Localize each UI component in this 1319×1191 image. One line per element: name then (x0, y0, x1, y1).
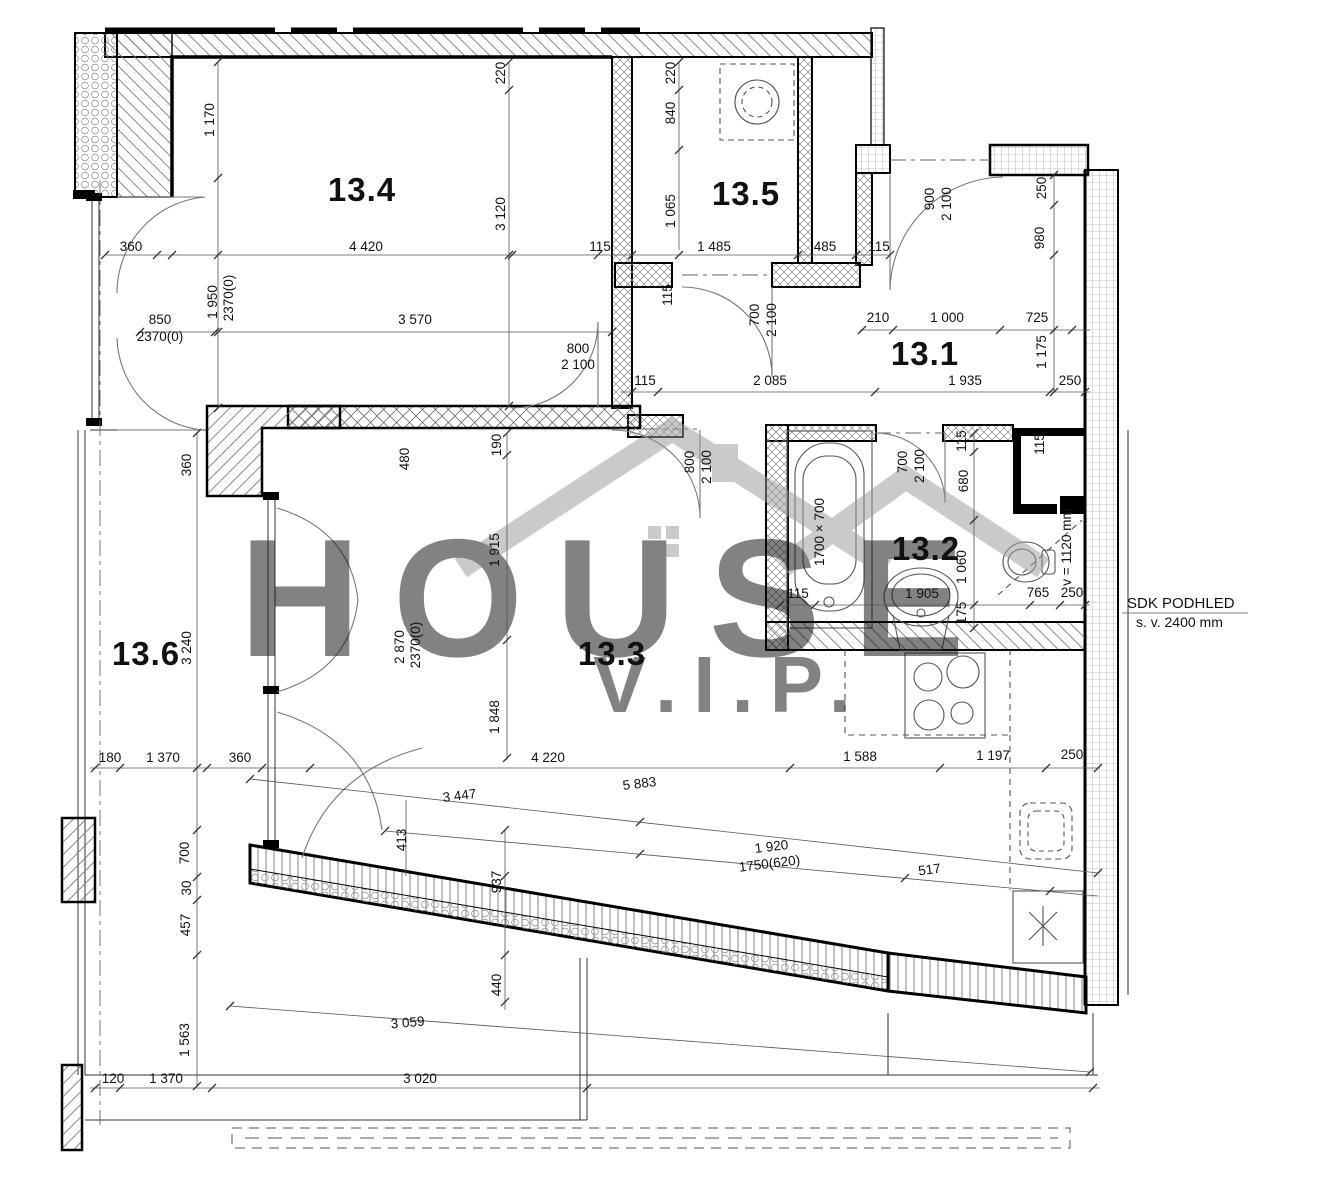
dim-label: 2 100 (912, 449, 927, 483)
dim-label: 5 883 (622, 774, 657, 793)
dim-label: 360 (179, 454, 194, 477)
room-label-13-4: 13.4 (328, 171, 396, 208)
dim-label: 250 (1061, 585, 1084, 600)
dim-label: 2370(0) (137, 329, 184, 344)
dim-label: 1 060 (954, 550, 969, 584)
dim-label: 900 (922, 188, 937, 211)
dim-label: 2 085 (753, 373, 787, 388)
dim-label: 2 100 (939, 187, 954, 221)
dim-label: 4 220 (531, 750, 565, 765)
dim-label: 1 588 (843, 749, 877, 764)
dim-label: 2 100 (699, 450, 714, 484)
dim-label: 1 370 (149, 1071, 183, 1086)
dim-label: 1 920 (754, 837, 789, 856)
loggia-wall-insulation (250, 869, 888, 991)
dim-label: 115 (868, 239, 890, 254)
dim-label: 4 420 (349, 239, 383, 254)
shaft-wall (1013, 428, 1021, 512)
dim-label: 765 (1027, 585, 1050, 600)
dim-label: 937 (489, 871, 504, 894)
dim-label: 220 (663, 62, 678, 85)
wall-13-5-bottom-left (615, 263, 672, 287)
dim-label: 800 (567, 341, 590, 356)
window-left (92, 197, 99, 425)
wall-13-5-right (798, 57, 812, 263)
dim-label: 1750(620) (738, 852, 801, 874)
left-exterior-wall-insulation (75, 33, 117, 197)
dim-label: 840 (663, 102, 678, 125)
dim-label: 800 (682, 451, 697, 474)
balcony-pillar (62, 1065, 82, 1150)
dim-label: 3 059 (390, 1014, 425, 1032)
dim-label: 115 (954, 430, 969, 452)
window-jamb (263, 840, 279, 848)
dim-label: 180 (99, 750, 122, 765)
room-label-13-1: 13.1 (891, 335, 959, 372)
dim-label: 1 170 (202, 103, 217, 137)
floor-plan-page: HOUSE V.I.P. 13.4 13.5 13.1 13.2 13.3 13… (0, 0, 1319, 1191)
dim-label: 2 870 (392, 630, 407, 664)
dim-label: 1 935 (948, 373, 982, 388)
dishwasher-icon (1013, 891, 1083, 963)
dim-label: 3 240 (179, 631, 194, 665)
dim-label: 3 120 (493, 197, 508, 231)
dim-label: 250 (1034, 177, 1049, 200)
wall-13-4-13-5 (612, 57, 632, 408)
kitchen-sink-icon (1020, 803, 1072, 859)
dim-label: 457 (178, 914, 193, 937)
right-exterior-wall (1085, 170, 1118, 1005)
dim-label: 480 (397, 448, 412, 471)
shaft-wall (1013, 504, 1057, 514)
height-note-label: v = 1120 mm (1059, 508, 1074, 585)
dim-label: 725 (1026, 310, 1049, 325)
dim-label: 1 950 (205, 285, 220, 319)
window-jamb (263, 492, 279, 500)
dim-label: 1 915 (487, 533, 502, 567)
dim-label: 115 (1032, 433, 1047, 455)
dim-label: 980 (1032, 227, 1047, 250)
dim-label: 360 (120, 239, 143, 254)
dim-label: 2370(0) (221, 275, 236, 322)
dim-label: 250 (1059, 373, 1082, 388)
room-label-13-2: 13.2 (892, 530, 960, 567)
dim-label: 190 (489, 434, 504, 457)
room-label-13-3: 13.3 (578, 635, 646, 672)
dim-label: 3 570 (398, 312, 432, 327)
dim-label: 1 848 (487, 700, 502, 734)
room-label-13-6: 13.6 (112, 635, 180, 672)
dim-label: 120 (102, 1071, 125, 1086)
corner-wall-13-3 (207, 406, 340, 496)
washing-machine-icon (720, 64, 794, 140)
balcony-door-swing (277, 712, 382, 830)
dim-label: 220 (493, 62, 508, 85)
dim-label: 485 (814, 239, 837, 254)
dim-label: 115 (634, 373, 656, 388)
dim-label: 30 (179, 880, 194, 895)
floor-plan-drawing: HOUSE V.I.P. 13.4 13.5 13.1 13.2 13.3 13… (0, 0, 1319, 1191)
dim-label: 3 447 (442, 786, 477, 805)
bathtub-size-label: 1700 × 700 (812, 498, 827, 566)
left-exterior-wall (117, 33, 172, 197)
dim-label: 1 065 (663, 194, 678, 228)
dim-label: 115 (787, 586, 809, 601)
dim-label: 700 (177, 842, 192, 865)
ceiling-note-title: SDK PODHLED (1127, 595, 1235, 612)
dim-label: 115 (660, 284, 675, 306)
house-logo-chimney (712, 444, 738, 482)
ceiling-note-subtitle: s. v. 2400 mm (1136, 614, 1223, 630)
dim-label: 2370(0) (408, 622, 423, 669)
dim-label: 413 (394, 829, 409, 852)
door-13-5-hall (682, 287, 772, 377)
dim-label: 1 563 (177, 1023, 192, 1057)
dim-label: 250 (1061, 747, 1084, 762)
room-label-13-5: 13.5 (712, 175, 780, 212)
dim-label: 1 197 (976, 748, 1010, 763)
dim-label: 517 (917, 861, 941, 879)
dim-label: 2 100 (561, 357, 595, 372)
door-13-4-lower (117, 338, 203, 430)
shaft-wall (1013, 428, 1085, 436)
dim-label: 360 (229, 750, 252, 765)
dim-label: 1 175 (1034, 335, 1049, 369)
entry-pier (856, 145, 890, 173)
top-exterior-wall (105, 33, 872, 57)
dim-label: 1 370 (146, 750, 180, 765)
wall-13-5-bottom-right (772, 263, 860, 287)
dim-label: 1 000 (930, 310, 964, 325)
dim-label: 115 (589, 239, 611, 254)
dim-label: 440 (489, 974, 504, 997)
dim-label: 175 (954, 602, 969, 625)
balcony-pillar (62, 818, 95, 902)
dim-label: 680 (956, 470, 971, 493)
dim-label: 3 020 (403, 1071, 437, 1086)
dim-label: 700 (747, 304, 762, 327)
dim-label: 2 100 (764, 303, 779, 337)
dim-label: 1 485 (697, 239, 731, 254)
entry-top-wall (990, 145, 1088, 175)
dim-label: 700 (895, 451, 910, 474)
party-wall-strip (871, 28, 884, 145)
dim-label: 210 (867, 310, 890, 325)
dim-label: 1 905 (905, 586, 939, 601)
dim-label: 850 (149, 312, 172, 327)
kitchen-bottom-wall (888, 953, 1086, 1013)
